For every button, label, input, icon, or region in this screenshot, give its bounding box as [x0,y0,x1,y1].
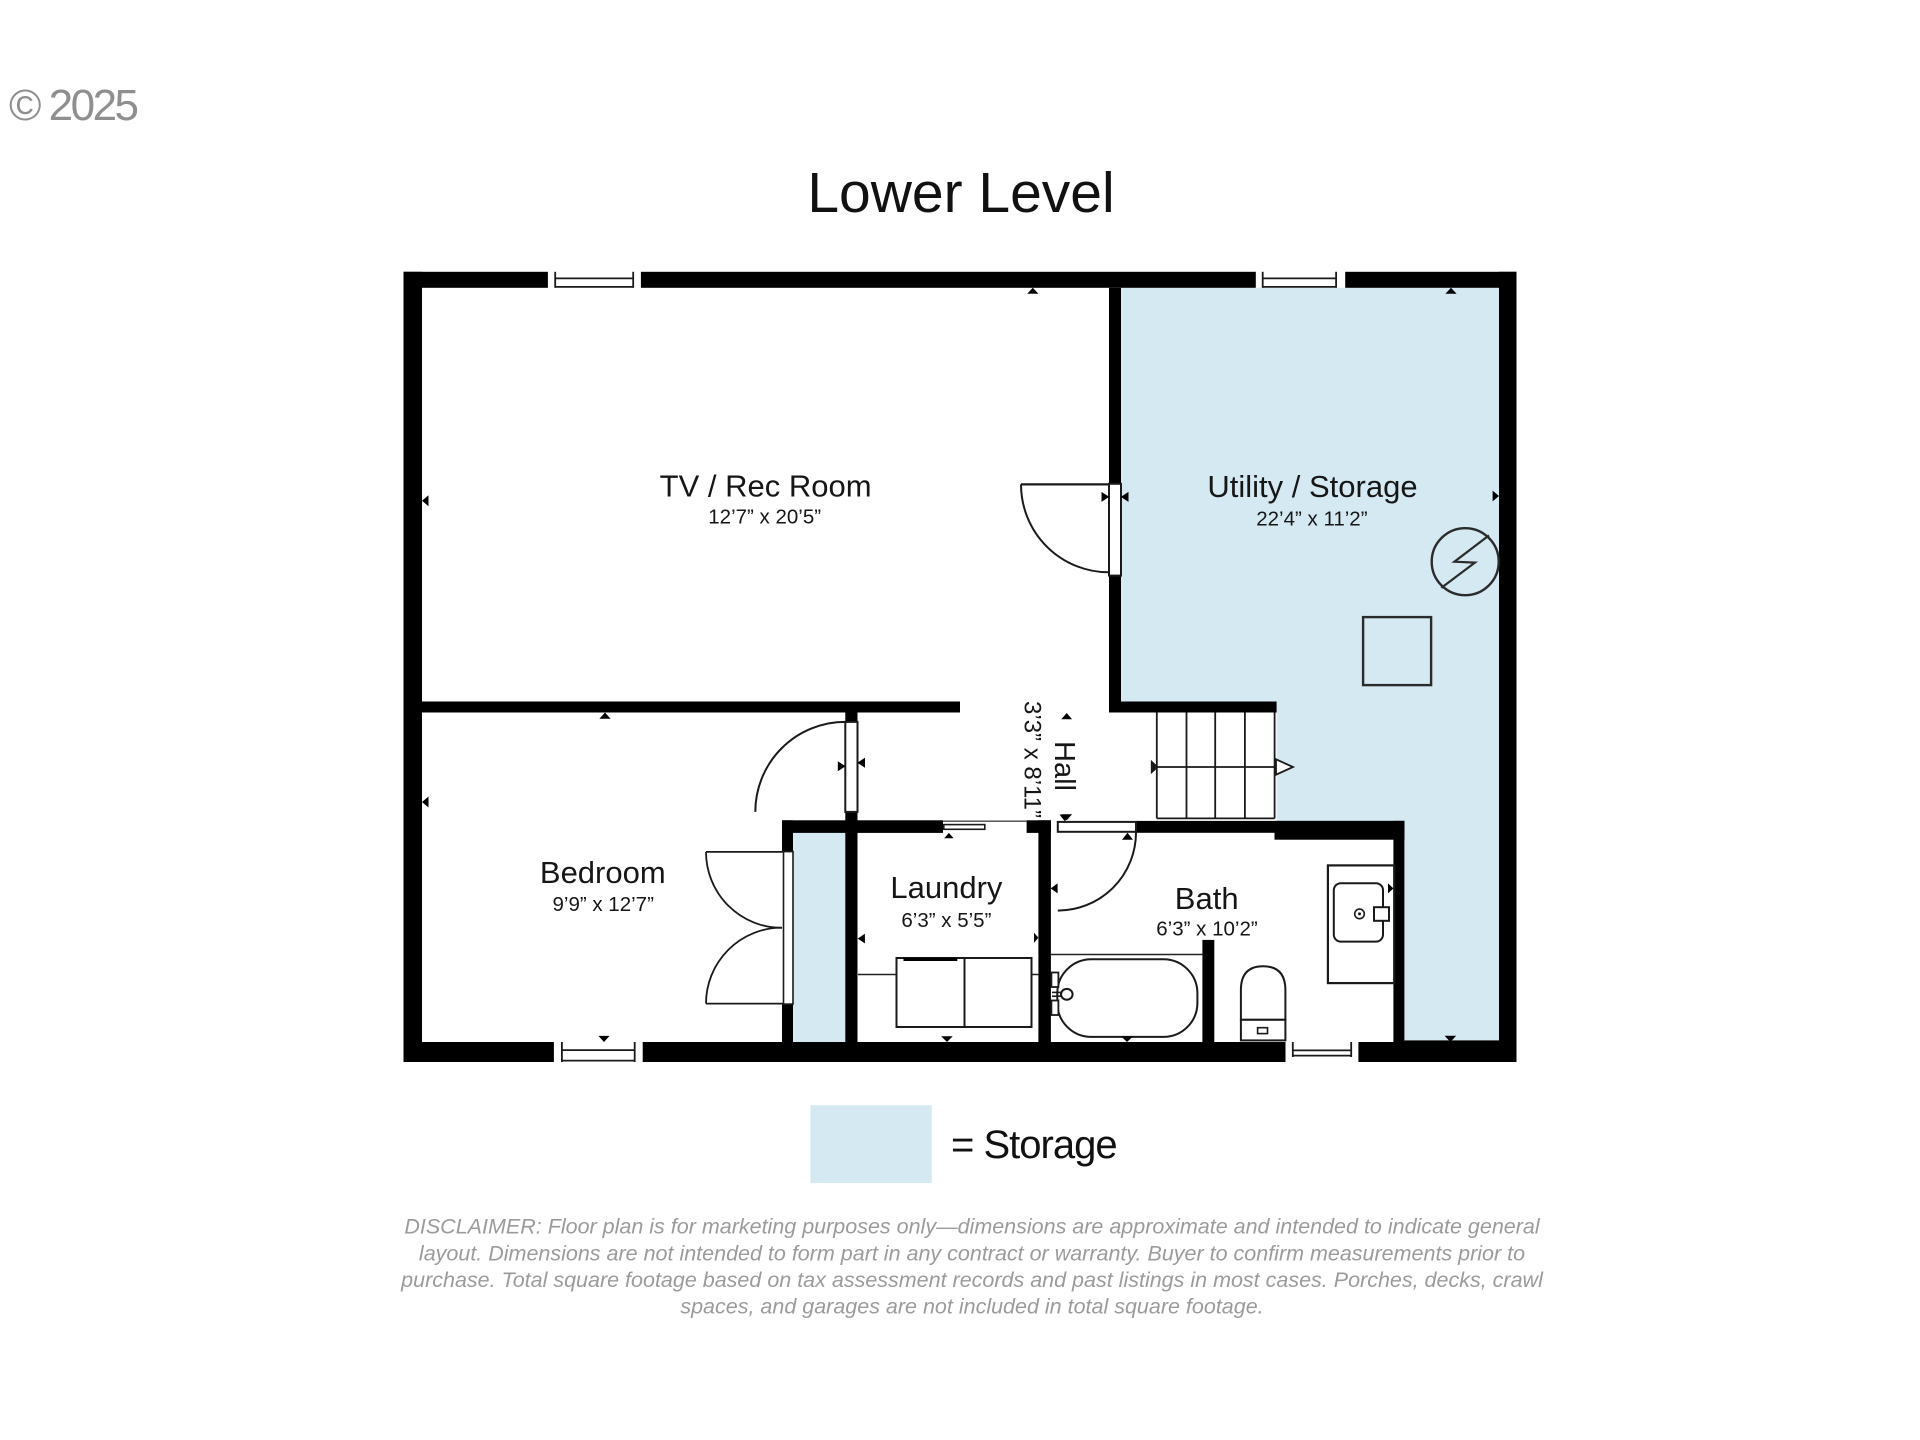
svg-text:3’3” x 8’11”: 3’3” x 8’11” [1018,701,1045,818]
svg-text:TV / Rec Room: TV / Rec Room [660,469,872,504]
svg-text:layout. Dimensions are not int: layout. Dimensions are not intended to f… [419,1242,1525,1266]
svg-text:© 2025: © 2025 [9,81,138,130]
svg-text:9’9” x 12’7”: 9’9” x 12’7” [552,893,654,916]
svg-text:6’3” x 10’2”: 6’3” x 10’2” [1156,918,1258,941]
svg-text:purchase. Total square footage: purchase. Total square footage based on … [400,1268,1544,1292]
svg-text:Bedroom: Bedroom [540,855,666,890]
svg-text:spaces, and garages are not in: spaces, and garages are not included in … [680,1294,1263,1318]
svg-text:12’7” x 20’5”: 12’7” x 20’5” [708,505,821,528]
svg-text:6’3” x 5’5”: 6’3” x 5’5” [901,909,991,932]
svg-text:Lower Level: Lower Level [807,161,1114,225]
svg-text:22’4” x 11’2”: 22’4” x 11’2” [1256,507,1367,530]
svg-text:= Storage: = Storage [951,1123,1117,1167]
svg-text:Utility / Storage: Utility / Storage [1207,469,1417,504]
svg-text:Bath: Bath [1175,881,1239,916]
svg-text:Hall: Hall [1048,741,1080,791]
svg-text:Laundry: Laundry [890,870,1003,905]
svg-text:DISCLAIMER: Floor plan is for: DISCLAIMER: Floor plan is for marketing … [404,1214,1541,1238]
